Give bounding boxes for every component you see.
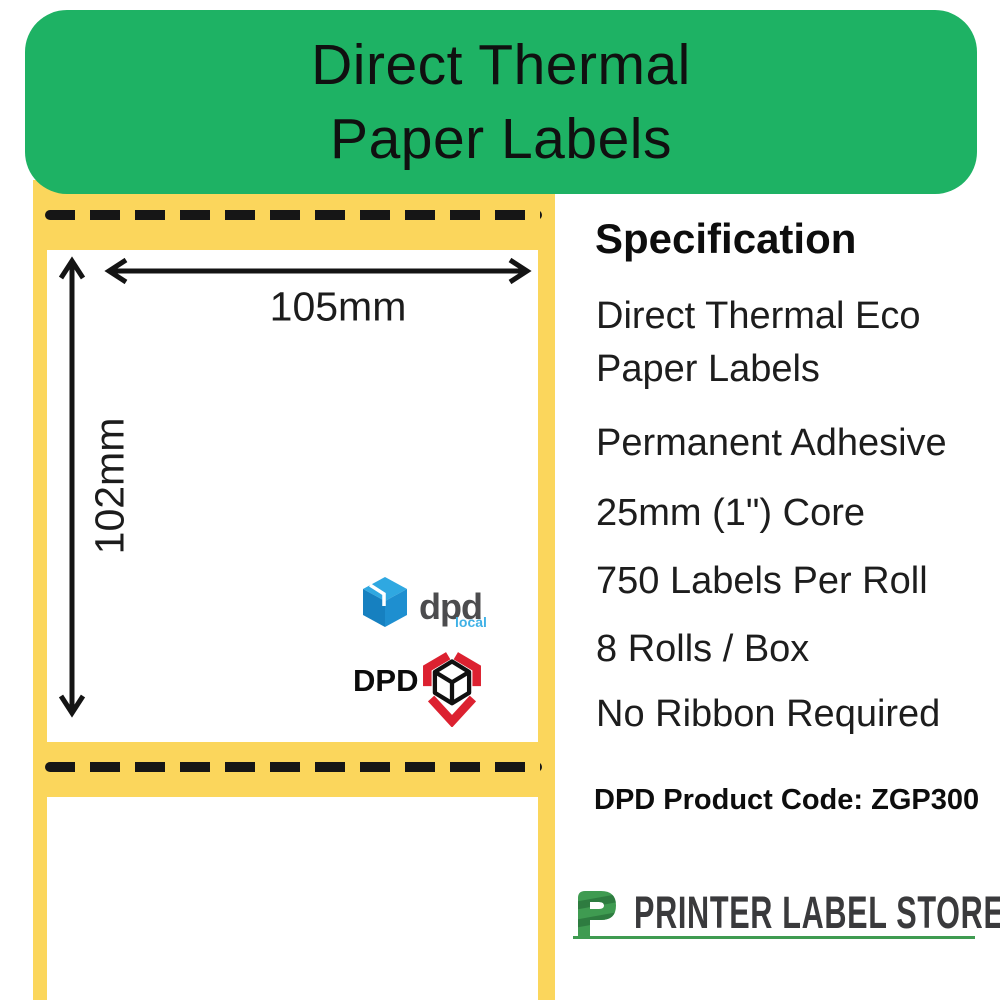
spec-item-rolls-per-box: 8 Rolls / Box (596, 623, 996, 676)
spec-item-core: 25mm (1") Core (596, 487, 996, 540)
height-dimension-label: 102mm (87, 418, 134, 555)
dpd-local-cube-icon (362, 576, 408, 628)
dpd-wordmark: DPD (353, 663, 418, 699)
page-title-line-2: Paper Labels (330, 102, 672, 176)
height-arrow-icon (56, 252, 88, 722)
width-arrow-icon (100, 255, 536, 287)
width-dimension-label: 105mm (270, 284, 407, 331)
spec-item-ribbon: No Ribbon Required (596, 688, 996, 741)
printer-label-store-wordmark: PRINTER LABEL STORE (634, 887, 1000, 939)
spec-item-labels-per-roll: 750 Labels Per Roll (596, 555, 996, 608)
printer-label-store-p-icon (570, 888, 620, 938)
title-banner: Direct Thermal Paper Labels (25, 10, 977, 194)
perforation-line-top (45, 210, 542, 220)
page-title-line-1: Direct Thermal (311, 28, 691, 102)
product-spec-image: Direct Thermal Paper Labels 105mm 102mm … (0, 0, 1000, 1000)
product-code: DPD Product Code: ZGP300 (594, 784, 979, 817)
dpd-local-tagline: local (455, 614, 487, 630)
specification-heading: Specification (595, 215, 856, 263)
spec-item-adhesive: Permanent Adhesive (596, 417, 996, 470)
brand-underline (573, 936, 975, 939)
label-face-next (47, 797, 538, 1000)
dpd-cube-icon (421, 651, 483, 727)
spec-item-material: Direct Thermal Eco Paper Labels (596, 290, 996, 396)
perforation-line-bottom (45, 762, 542, 772)
